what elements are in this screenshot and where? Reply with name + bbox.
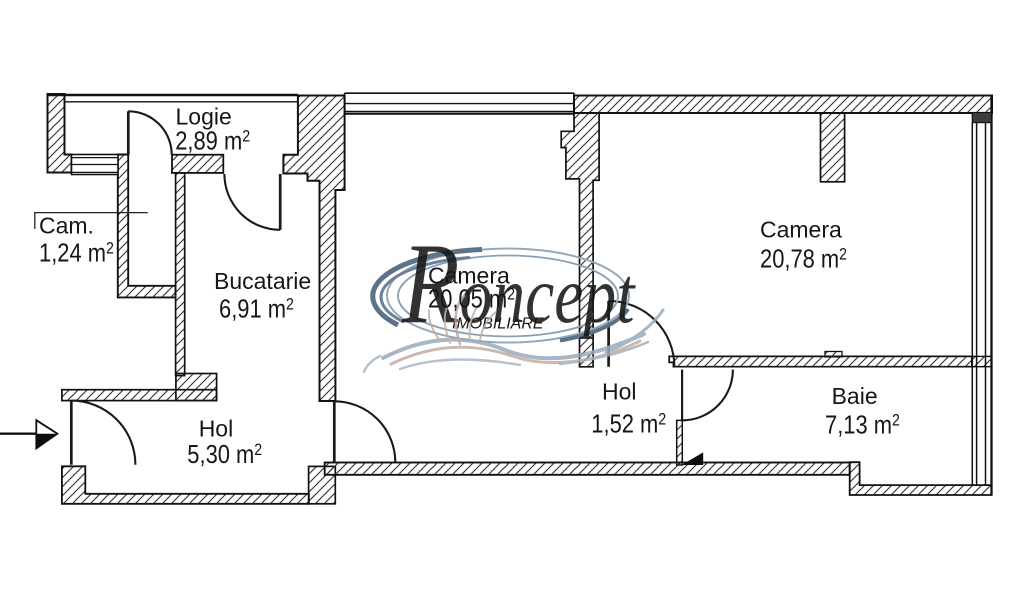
svg-text:Hol: Hol	[602, 379, 637, 405]
svg-text:Camera: Camera	[760, 217, 842, 243]
svg-text:20,05 m2: 20,05 m2	[428, 285, 515, 314]
svg-text:Cam.: Cam.	[39, 213, 94, 239]
svg-text:IMOBILIARE: IMOBILIARE	[452, 316, 544, 333]
svg-text:7,13 m2: 7,13 m2	[825, 411, 900, 440]
svg-text:Hol: Hol	[199, 416, 234, 442]
svg-text:5,30 m2: 5,30 m2	[187, 440, 262, 469]
svg-text:2,89 m2: 2,89 m2	[175, 127, 250, 156]
svg-text:Logie: Logie	[176, 104, 232, 130]
svg-text:6,91 m2: 6,91 m2	[219, 295, 294, 324]
svg-text:Baie: Baie	[832, 383, 878, 409]
svg-text:1,52 m2: 1,52 m2	[591, 410, 666, 439]
svg-text:1,24 m2: 1,24 m2	[39, 239, 114, 268]
svg-text:Bucatarie: Bucatarie	[214, 268, 311, 294]
svg-text:20,78 m2: 20,78 m2	[760, 245, 847, 274]
